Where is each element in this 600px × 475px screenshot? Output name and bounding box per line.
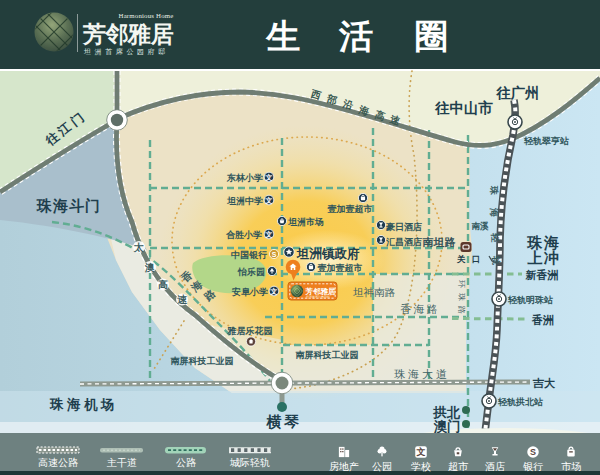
svg-text:珠海机场: 珠海机场 xyxy=(49,397,118,412)
svg-text:珠: 珠 xyxy=(489,185,499,196)
svg-text:香洲: 香洲 xyxy=(531,314,554,326)
svg-text:澳门: 澳门 xyxy=(434,419,461,434)
svg-text:南屏科技工业园: 南屏科技工业园 xyxy=(171,356,234,366)
svg-text:速: 速 xyxy=(177,294,188,305)
svg-text:主干道: 主干道 xyxy=(106,457,137,468)
svg-text:坦神南路: 坦神南路 xyxy=(353,286,396,298)
svg-text:学校: 学校 xyxy=(411,461,431,472)
svg-text:新香洲: 新香洲 xyxy=(525,269,559,281)
svg-text:关: 关 xyxy=(456,254,466,264)
svg-text:超市: 超市 xyxy=(448,461,469,472)
svg-text:高: 高 xyxy=(158,279,168,290)
svg-text:坦洲镇政府: 坦洲镇政府 xyxy=(296,247,360,261)
svg-text:中国银行: 中国银行 xyxy=(231,250,268,260)
svg-text:拱北: 拱北 xyxy=(433,405,462,420)
svg-text:公园: 公园 xyxy=(372,461,392,472)
svg-text:坦洲首席公园府邸: 坦洲首席公园府邸 xyxy=(83,48,169,56)
svg-text:汇昌酒店: 汇昌酒店 xyxy=(386,237,422,247)
svg-text:轻轨翠亨站: 轻轨翠亨站 xyxy=(523,136,569,146)
svg-text:城际轻轨: 城际轻轨 xyxy=(229,457,270,468)
svg-text:往广州: 往广州 xyxy=(495,85,540,101)
svg-text:路: 路 xyxy=(457,306,466,314)
svg-text:怡乐园: 怡乐园 xyxy=(237,267,265,277)
svg-text:房地产: 房地产 xyxy=(329,461,359,472)
svg-text:公路: 公路 xyxy=(176,457,196,468)
svg-text:合胜小学: 合胜小学 xyxy=(226,230,262,240)
svg-text:高速公路: 高速公路 xyxy=(38,457,78,468)
svg-text:东林小学: 东林小学 xyxy=(226,173,263,183)
svg-text:银行: 银行 xyxy=(523,461,543,472)
svg-text:澳: 澳 xyxy=(144,262,155,273)
svg-text:轨: 轨 xyxy=(491,255,501,265)
svg-text:生: 生 xyxy=(265,17,301,55)
svg-text:吉大: 吉大 xyxy=(532,377,556,389)
svg-text:海: 海 xyxy=(489,207,499,217)
svg-text:坦洲中学: 坦洲中学 xyxy=(226,196,263,206)
svg-text:芳邻雅居: 芳邻雅居 xyxy=(82,22,174,47)
svg-text:文: 文 xyxy=(416,447,426,457)
svg-text:壹加壹超市: 壹加壹超市 xyxy=(318,263,363,273)
svg-text:活: 活 xyxy=(338,17,373,55)
svg-text:南溪: 南溪 xyxy=(472,221,490,231)
svg-text:上冲: 上冲 xyxy=(527,249,561,266)
svg-text:壹加壹超市: 壹加壹超市 xyxy=(328,204,373,214)
svg-text:轻: 轻 xyxy=(490,232,500,243)
svg-text:Harmonious Home: Harmonious Home xyxy=(119,12,174,19)
svg-text:雅居乐花园: 雅居乐花园 xyxy=(227,326,273,336)
svg-text:南屏科技工业园: 南屏科技工业园 xyxy=(296,350,359,360)
svg-text:坦洲市场: 坦洲市场 xyxy=(287,217,324,227)
svg-text:太: 太 xyxy=(133,242,144,253)
svg-text:圈: 圈 xyxy=(415,17,449,55)
svg-text:S: S xyxy=(530,447,536,457)
svg-text:安阜小学: 安阜小学 xyxy=(231,286,268,297)
svg-text:横琴: 横琴 xyxy=(266,413,302,430)
svg-text:酒店: 酒店 xyxy=(485,461,505,472)
svg-text:珠海斗门: 珠海斗门 xyxy=(36,197,101,214)
svg-text:往中山市: 往中山市 xyxy=(434,100,494,116)
svg-text:香海路: 香海路 xyxy=(401,303,440,315)
svg-text:环: 环 xyxy=(457,279,466,288)
svg-text:珠: 珠 xyxy=(457,293,466,301)
svg-text:轻轨明珠站: 轻轨明珠站 xyxy=(507,295,553,305)
svg-text:轻轨拱北站: 轻轨拱北站 xyxy=(497,397,543,407)
svg-text:市场: 市场 xyxy=(561,461,581,472)
svg-text:口: 口 xyxy=(472,254,481,264)
svg-text:珠海大道: 珠海大道 xyxy=(394,368,450,380)
svg-text:南坦路: 南坦路 xyxy=(422,236,456,248)
svg-text:坦洲首席公园府邸: 坦洲首席公园府邸 xyxy=(305,295,330,299)
svg-text:豪日酒店: 豪日酒店 xyxy=(385,222,422,232)
